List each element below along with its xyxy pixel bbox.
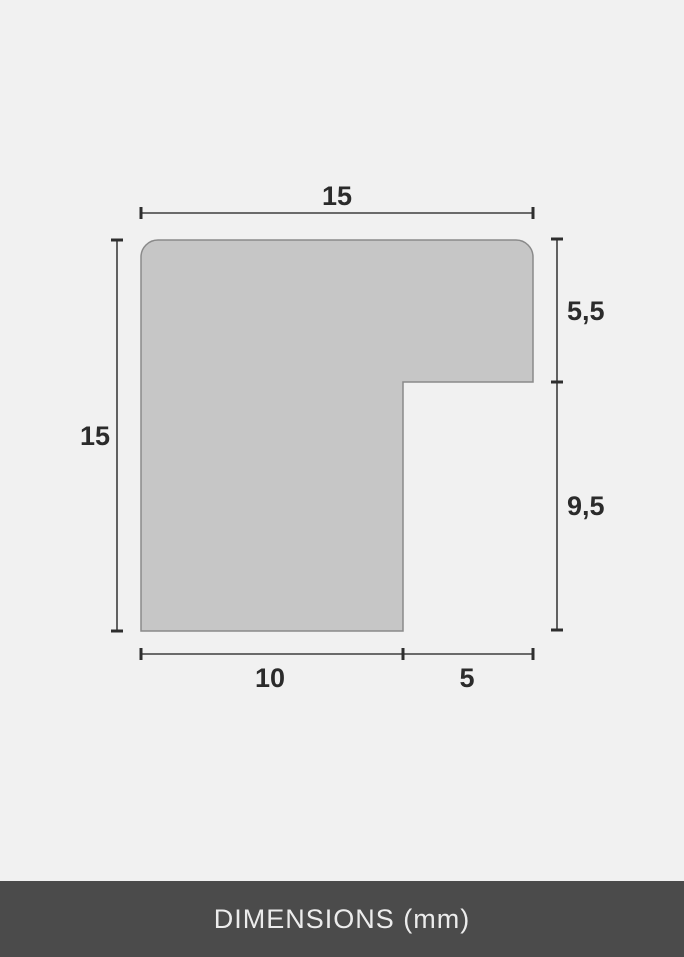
footer-bar: DIMENSIONS (mm) xyxy=(0,881,684,957)
dim-label-right-lower: 9,5 xyxy=(567,491,605,521)
dimension-bottom-segments: 10 5 xyxy=(141,648,533,693)
dim-label-left-height: 15 xyxy=(80,421,110,451)
dim-label-bottom-inner: 10 xyxy=(255,663,285,693)
profile-shape xyxy=(141,240,533,631)
dim-label-top-width: 15 xyxy=(322,181,352,211)
diagram-svg: 15 15 5,5 9,5 xyxy=(0,0,684,881)
profile-dimension-diagram: 15 15 5,5 9,5 xyxy=(0,0,684,881)
page: 15 15 5,5 9,5 xyxy=(0,0,684,957)
dim-label-bottom-outer: 5 xyxy=(459,663,474,693)
footer-title: DIMENSIONS (mm) xyxy=(214,904,470,935)
dimension-top-width: 15 xyxy=(141,181,533,219)
dimension-left-height: 15 xyxy=(80,240,123,631)
dimension-right-segments: 5,5 9,5 xyxy=(551,239,605,630)
dim-label-right-upper: 5,5 xyxy=(567,296,605,326)
